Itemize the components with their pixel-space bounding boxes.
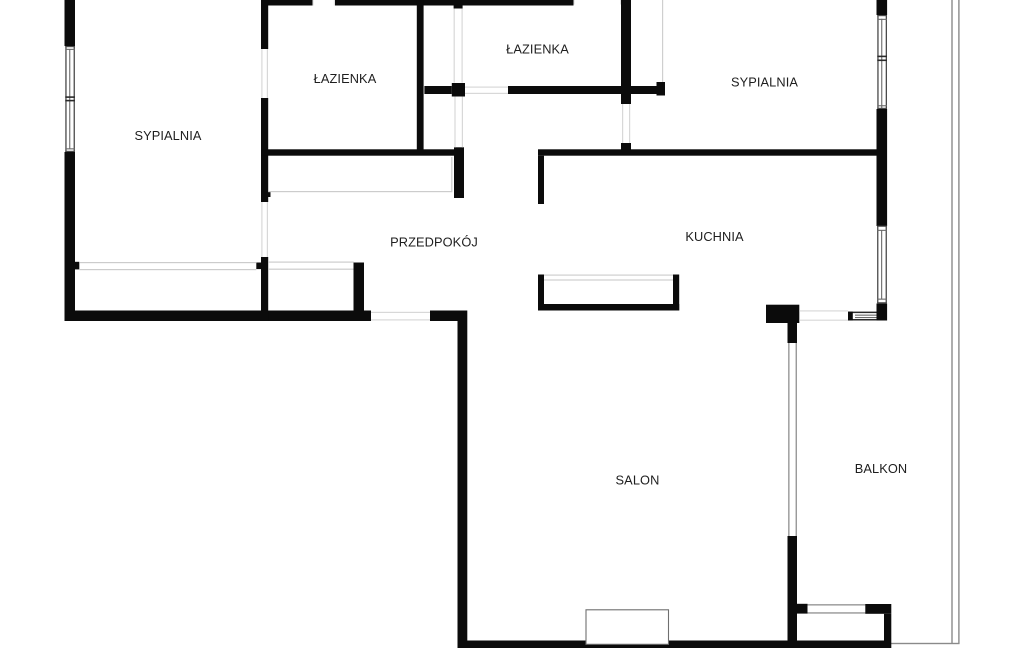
- svg-text:ŁAZIENKA: ŁAZIENKA: [506, 42, 569, 57]
- svg-text:SYPIALNIA: SYPIALNIA: [731, 75, 798, 90]
- svg-text:SALON: SALON: [616, 473, 660, 488]
- svg-text:BALKON: BALKON: [855, 461, 908, 476]
- svg-text:ŁAZIENKA: ŁAZIENKA: [314, 71, 377, 86]
- svg-text:KUCHNIA: KUCHNIA: [685, 229, 744, 244]
- svg-text:PRZEDPOKÓJ: PRZEDPOKÓJ: [390, 235, 478, 250]
- svg-text:SYPIALNIA: SYPIALNIA: [134, 128, 201, 143]
